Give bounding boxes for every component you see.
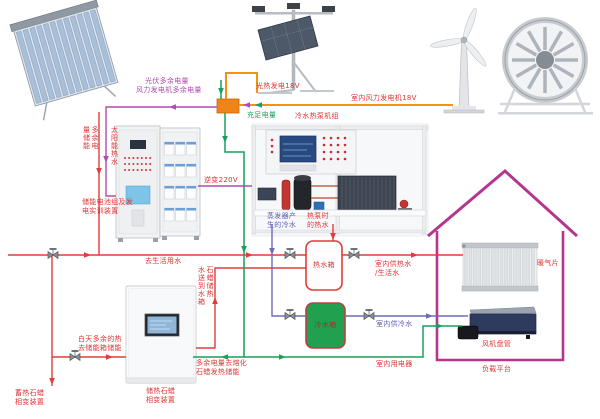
radiator-icon bbox=[462, 243, 538, 291]
wind-turbine-icon bbox=[430, 7, 488, 113]
energy-system-diagram: 太阳能热水 多余电 量储能 光伏多余电量 风力发电机多余电量 光热发电18V 室… bbox=[0, 0, 600, 419]
valve-icon bbox=[349, 249, 359, 259]
battery-cabinets-icon bbox=[116, 126, 200, 242]
cold-water-tank bbox=[306, 303, 345, 348]
valve-icon bbox=[364, 310, 374, 320]
valve-icon bbox=[285, 310, 295, 320]
diagram-graphics bbox=[0, 0, 600, 419]
pv-tracker-icon bbox=[252, 3, 335, 94]
hot-water-tank bbox=[306, 241, 342, 290]
pipes-cold-water bbox=[272, 224, 468, 316]
heat-pump-unit-icon bbox=[252, 124, 428, 236]
fan-coil-icon bbox=[458, 307, 536, 339]
valve-icon bbox=[70, 351, 80, 361]
wind-tunnel-fan-icon bbox=[498, 20, 593, 115]
paraffin-cabinet-icon bbox=[126, 286, 196, 383]
valve-icon bbox=[285, 249, 295, 259]
valve-icon bbox=[48, 249, 58, 259]
solar-collector-icon bbox=[10, 0, 124, 122]
power-junction-box bbox=[217, 99, 239, 113]
wires-18v-power bbox=[226, 73, 453, 105]
